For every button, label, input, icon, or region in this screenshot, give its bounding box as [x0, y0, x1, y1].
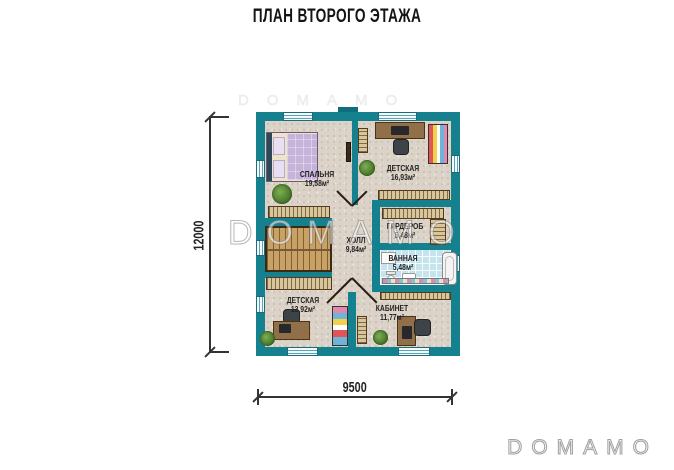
child2-wardrobe-colorful — [332, 306, 348, 346]
page-title: ПЛАН ВТОРОГО ЭТАЖА — [0, 6, 674, 28]
wall-child1-wardrobe — [372, 200, 451, 207]
window-bedroom-left — [256, 160, 265, 178]
wall-hall-wardrobe — [372, 200, 380, 292]
window-child1-top — [378, 112, 417, 121]
plant-icon — [272, 184, 292, 204]
dimension-label-vertical: 12000 — [191, 206, 208, 266]
wardrobe-shelf-side — [430, 219, 446, 245]
staircase — [265, 226, 332, 272]
room-label-child2: ДЕТСКАЯ 13,92м² — [287, 296, 319, 314]
plant-icon — [373, 330, 388, 345]
room-label-hall: ХОЛЛ 9,84м² — [346, 236, 367, 254]
floor-plan-page: ПЛАН ВТОРОГО ЭТАЖА DOMAMO DOMAMO 12000 9… — [0, 0, 674, 470]
floor-plan: СПАЛЬНЯ 19,58м² ДЕТСКАЯ 16,93м² ГАРДЕРОБ… — [256, 112, 460, 356]
office-chair — [414, 319, 431, 336]
bath-mat — [382, 278, 449, 284]
watermark-corner: DOMAMO — [507, 436, 658, 460]
dimension-line-vertical — [209, 117, 211, 352]
wardrobe-shelf-top — [382, 208, 444, 219]
dimension-line-horizontal — [258, 396, 452, 398]
mirror — [346, 142, 351, 162]
watermark-tile-top: DOMAMO — [238, 92, 415, 109]
plant-icon — [260, 331, 275, 346]
room-label-child1: ДЕТСКАЯ 16,93м² — [387, 164, 419, 182]
window-child2-bottom — [287, 347, 318, 356]
wall-exterior-left — [256, 112, 265, 356]
pillow — [273, 137, 285, 155]
wall-bedroom-stairs — [265, 218, 332, 226]
hall-shelf — [358, 128, 368, 153]
office-shelf-top — [380, 292, 451, 300]
dimension-label-horizontal: 9500 — [325, 379, 385, 396]
child2-desk — [273, 321, 310, 340]
child1-bed-colorful — [428, 124, 448, 164]
bed-headboard — [267, 133, 272, 181]
room-label-bathroom: ВАННАЯ 5,48м² — [388, 254, 417, 272]
bedroom-dresser — [268, 206, 330, 218]
room-label-bedroom: СПАЛЬНЯ 19,58м² — [300, 170, 334, 188]
room-label-office: КАБИНЕТ 11,77м² — [376, 304, 408, 322]
window-office-bottom — [398, 347, 430, 356]
child1-shelf — [378, 190, 450, 200]
child1-desk — [375, 122, 425, 139]
pillow — [273, 160, 285, 178]
child2-shelf — [266, 277, 332, 290]
stair-landing — [267, 249, 330, 251]
office-shelf-side — [357, 316, 367, 344]
window-bedroom-top — [283, 112, 313, 121]
page-title-text: ПЛАН ВТОРОГО ЭТАЖА — [253, 6, 421, 28]
computer-monitor-icon — [391, 126, 409, 135]
computer-monitor-icon — [402, 326, 412, 339]
plant-icon — [359, 160, 375, 176]
wall-bath-office — [372, 285, 451, 292]
window-child1-right — [451, 155, 460, 173]
room-label-wardrobe: ГАРДЕРОБ 5,48м² — [387, 222, 423, 240]
child1-chair — [393, 139, 409, 155]
wall-child2-office — [348, 292, 356, 347]
wall-exterior-right — [451, 112, 460, 356]
computer-monitor-icon — [279, 324, 291, 333]
window-stairs-left — [256, 240, 265, 256]
window-child2-left — [256, 296, 265, 313]
